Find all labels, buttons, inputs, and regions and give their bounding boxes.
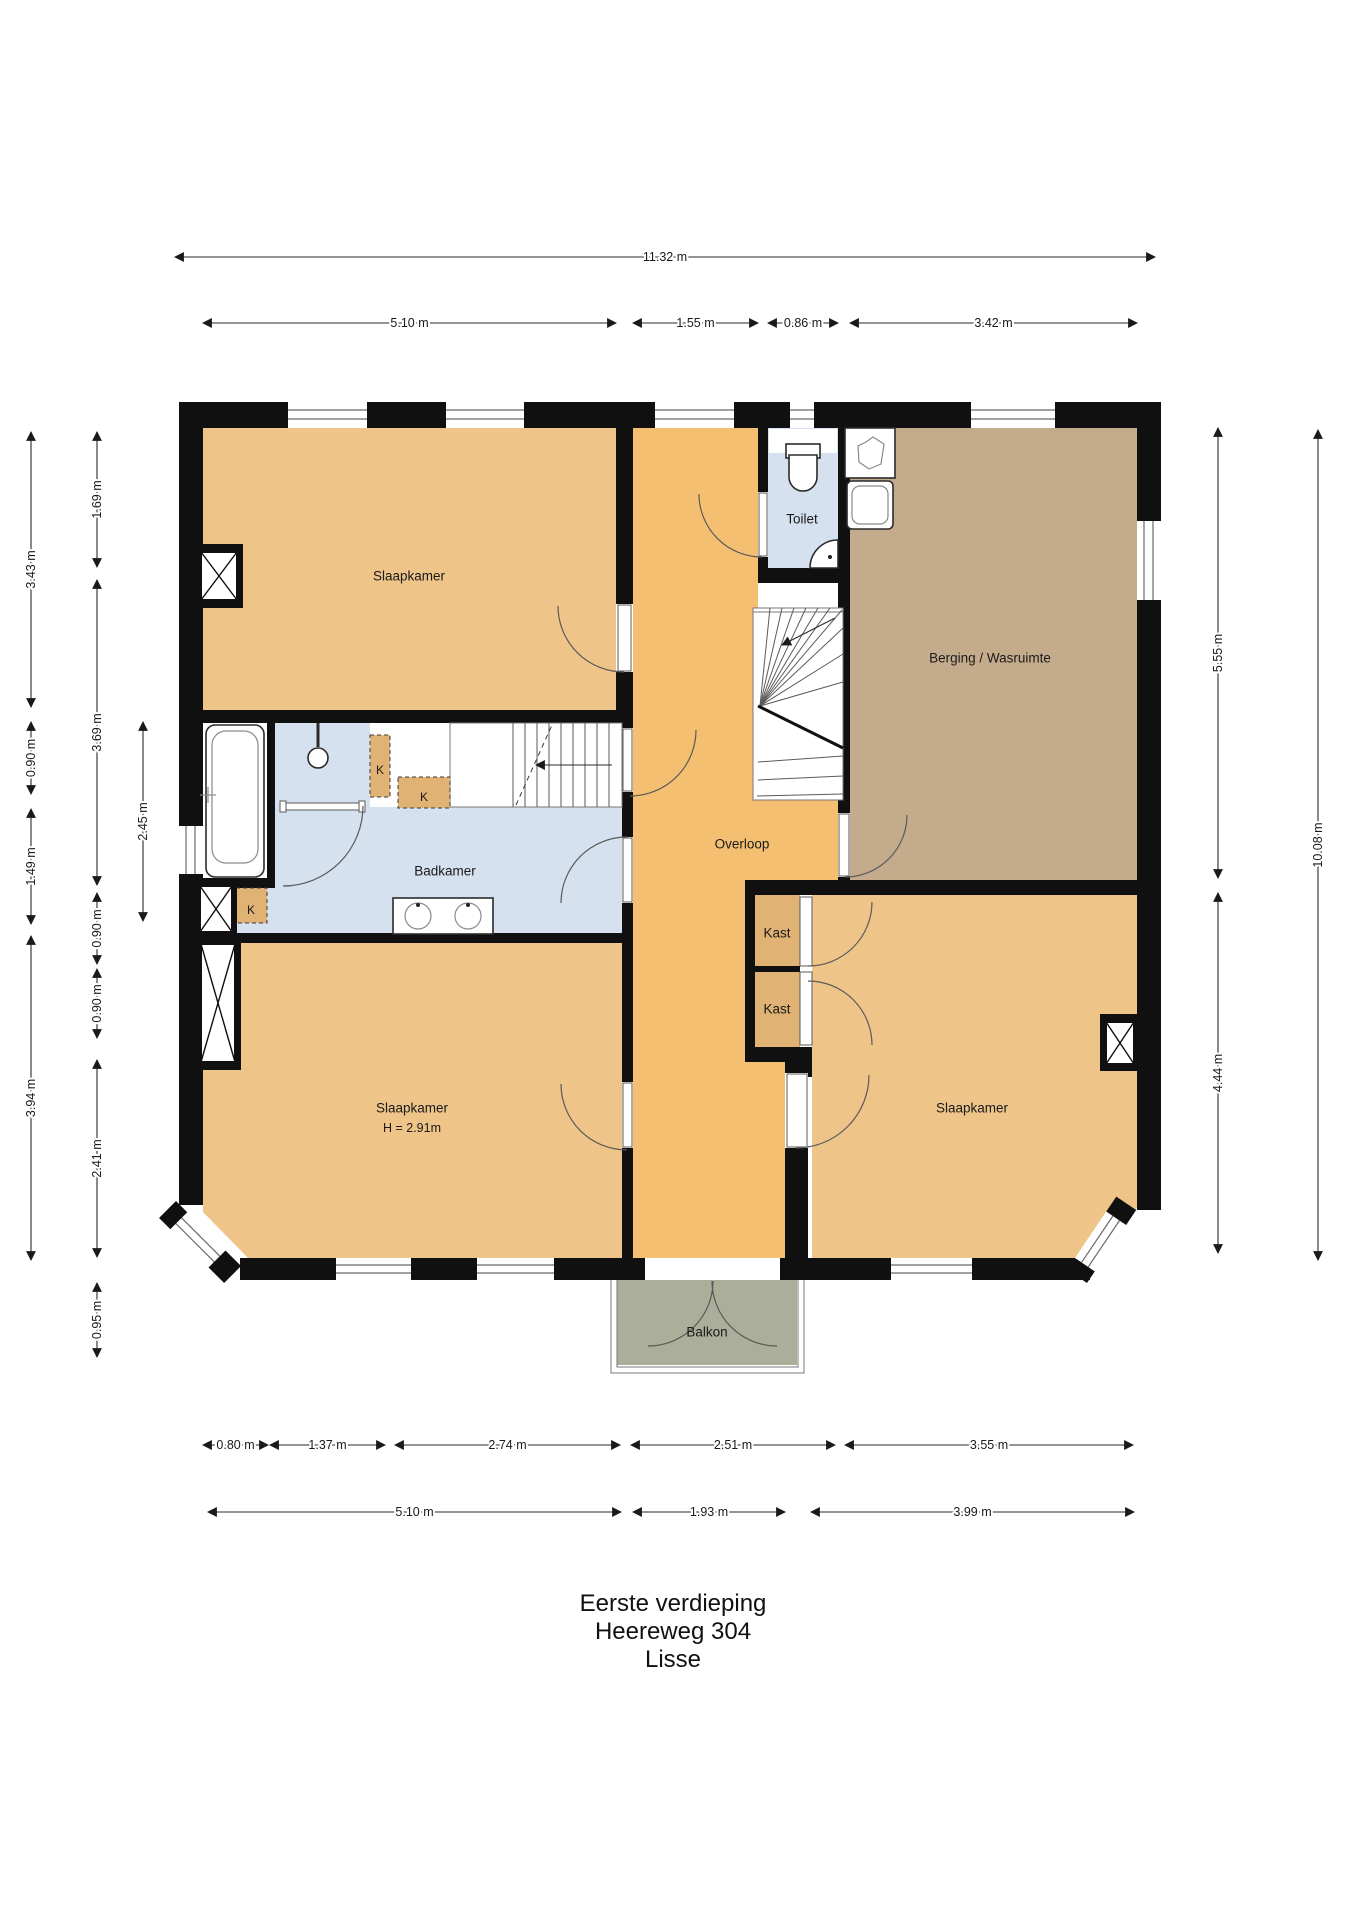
room-label-bedroom-bottom-left: Slaapkamer (376, 1101, 449, 1116)
dimension-label: 10.08 m (1311, 822, 1325, 867)
dimension-label: 0.86 m (784, 316, 822, 330)
toilet-icon (786, 444, 820, 491)
room-label-landing: Overloop (715, 837, 770, 852)
dimension-label: 11.32 m (643, 250, 687, 264)
window-icon (333, 1258, 414, 1280)
dimension-label: 0.80 m (216, 1438, 254, 1452)
room-floors (203, 428, 1137, 1258)
cupboard-mark: K (247, 903, 255, 917)
dimension-label: 0.90 m (90, 984, 104, 1022)
dimension-label: 5.10 m (395, 1505, 433, 1519)
dimension-label: 2.74 m (488, 1438, 526, 1452)
dimension-label: 2.51 m (714, 1438, 752, 1452)
room-sublabel-bedroom-bottom-left: H = 2.91m (383, 1121, 441, 1135)
dimension-label: 1.69 m (90, 480, 104, 518)
dimension-label: 3.42 m (974, 316, 1012, 330)
title-address: Heereweg 304 (0, 1618, 1346, 1646)
window-icon (888, 1258, 975, 1280)
dimension-label: 5.55 m (1211, 634, 1225, 672)
dimension-label: 3.55 m (970, 1438, 1008, 1452)
cupboard-mark: K (420, 790, 428, 804)
title-city: Lisse (0, 1646, 1346, 1674)
dimension-label: 2.41 m (90, 1139, 104, 1177)
winder-staircase (753, 608, 843, 800)
dimension-label: 1.49 m (24, 847, 38, 885)
room-label-storage-laundry: Berging / Wasruimte (929, 651, 1051, 666)
washing-machine-icon (847, 481, 893, 529)
title-floor: Eerste verdieping (0, 1590, 1346, 1618)
window-icon (474, 1258, 557, 1280)
plan-title: Eerste verdieping Heereweg 304 Lisse (0, 1590, 1346, 1674)
dimension-label: 0.90 m (24, 739, 38, 777)
chimney-shaft-icon (179, 544, 243, 608)
dimension-label: 3.94 m (24, 1079, 38, 1117)
window-icon (285, 402, 370, 428)
window-icon (179, 823, 203, 877)
dimension-label: 1.37 m (308, 1438, 346, 1452)
laundry-sink-icon (845, 428, 895, 478)
dimension-label: 5.10 m (390, 316, 428, 330)
dimension-label: 4.44 m (1211, 1054, 1225, 1092)
dimension-label: 0.90 m (90, 909, 104, 947)
dimension-label: 3.99 m (953, 1505, 991, 1519)
dimension-label: 3.69 m (90, 713, 104, 751)
window-icon (787, 402, 817, 428)
dimension-label: 3.43 m (24, 550, 38, 588)
cupboard-mark: K (376, 763, 384, 777)
room-label-closet-1: Kast (763, 926, 790, 941)
dimension-label: 0.95 m (90, 1301, 104, 1339)
chimney-shaft-icon (1100, 1014, 1161, 1071)
dimension-label: 1.55 m (676, 316, 714, 330)
window-icon (652, 402, 737, 428)
chimney-shaft-icon (179, 936, 241, 1070)
dimension-label: 2.45 m (136, 802, 150, 840)
bedroom-right-floor (812, 895, 1137, 1258)
room-label-bedroom-top-left: Slaapkamer (373, 569, 446, 584)
room-label-balcony: Balkon (686, 1325, 727, 1340)
floorplan-page: 11.32 m5.10 m1.55 m0.86 m3.42 m0.80 m1.3… (0, 0, 1358, 1920)
room-label-bathroom: Badkamer (414, 864, 476, 879)
window-icon (443, 402, 527, 428)
double-washbasin-icon (393, 898, 493, 934)
dimension-label: 1.93 m (690, 1505, 728, 1519)
room-label-toilet: Toilet (786, 512, 818, 527)
chimney-shaft-icon (179, 878, 237, 940)
room-label-bedroom-right: Slaapkamer (936, 1101, 1009, 1116)
bathtub-icon (200, 725, 264, 877)
staircase (450, 723, 622, 807)
window-icon (968, 402, 1058, 428)
room-label-closet-2: Kast (763, 1002, 790, 1017)
window-icon (1137, 518, 1161, 603)
